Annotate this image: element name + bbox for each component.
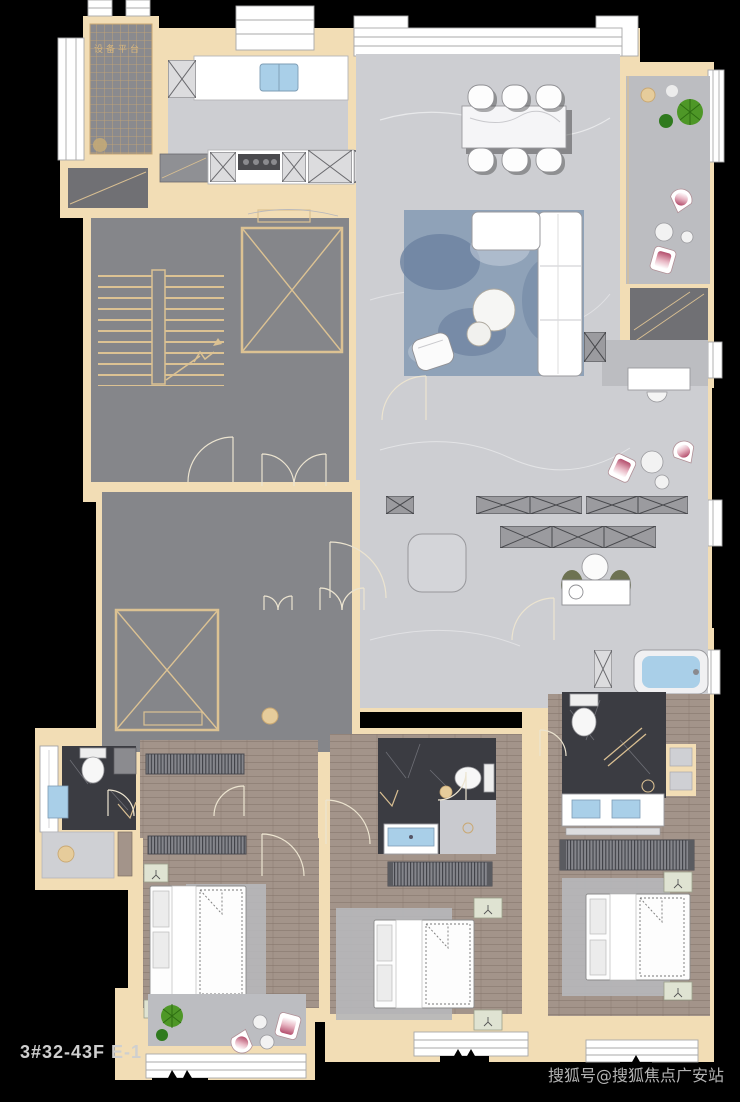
foyer-pouf xyxy=(408,534,466,592)
desk-chair xyxy=(582,554,608,580)
shower xyxy=(48,786,68,818)
dining-table xyxy=(462,106,566,148)
window-top-left-1 xyxy=(88,0,112,16)
console-table xyxy=(628,368,690,390)
equipment-platform-label: 设备平台 xyxy=(94,42,142,55)
dining-set xyxy=(462,85,572,175)
living-room xyxy=(400,210,584,376)
window-right-1 xyxy=(708,70,724,162)
window-right-2 xyxy=(708,342,722,378)
marble-counter xyxy=(42,832,114,878)
wardrobe xyxy=(146,754,244,774)
desk xyxy=(562,580,630,605)
wardrobe xyxy=(148,836,246,854)
shower-floor xyxy=(440,800,496,854)
toilet xyxy=(82,757,104,783)
balcony-right xyxy=(626,76,710,284)
middle-wardrobe xyxy=(388,862,492,886)
window-top-left-2 xyxy=(126,0,150,16)
toilet xyxy=(455,767,481,789)
sofa-chaise xyxy=(472,212,540,250)
screenshot-root: 设备平台 3#32-43F E-1 搜狐号@搜狐焦点广安站 xyxy=(0,0,740,1102)
watermark-text: 搜狐号@搜狐焦点广安站 xyxy=(548,1062,724,1086)
elevator-1 xyxy=(242,209,342,352)
stair-rail xyxy=(152,270,165,384)
bathtub-room xyxy=(558,644,708,700)
plant-icon xyxy=(156,1029,168,1041)
window-left xyxy=(58,38,84,160)
sofa-main xyxy=(538,212,582,376)
plant-icon xyxy=(659,114,673,128)
window-kitchen-top xyxy=(236,6,314,50)
left-bathroom xyxy=(40,746,136,878)
window-master-bottom xyxy=(586,1040,698,1062)
window-right-3 xyxy=(708,500,722,546)
left-bedroom xyxy=(143,836,319,1018)
left-top-room xyxy=(140,740,318,838)
window-dining-band xyxy=(354,16,638,56)
elevator-2 xyxy=(116,610,218,730)
master-wardrobe xyxy=(560,840,694,870)
ac-platform-right xyxy=(630,288,708,346)
shaft xyxy=(114,748,136,774)
middle-bathroom xyxy=(378,738,496,854)
floor-plan-svg xyxy=(0,0,740,1102)
round-stool xyxy=(262,708,278,724)
toilet xyxy=(572,708,596,736)
plan-code-label: 3#32-43F E-1 xyxy=(20,1042,142,1063)
